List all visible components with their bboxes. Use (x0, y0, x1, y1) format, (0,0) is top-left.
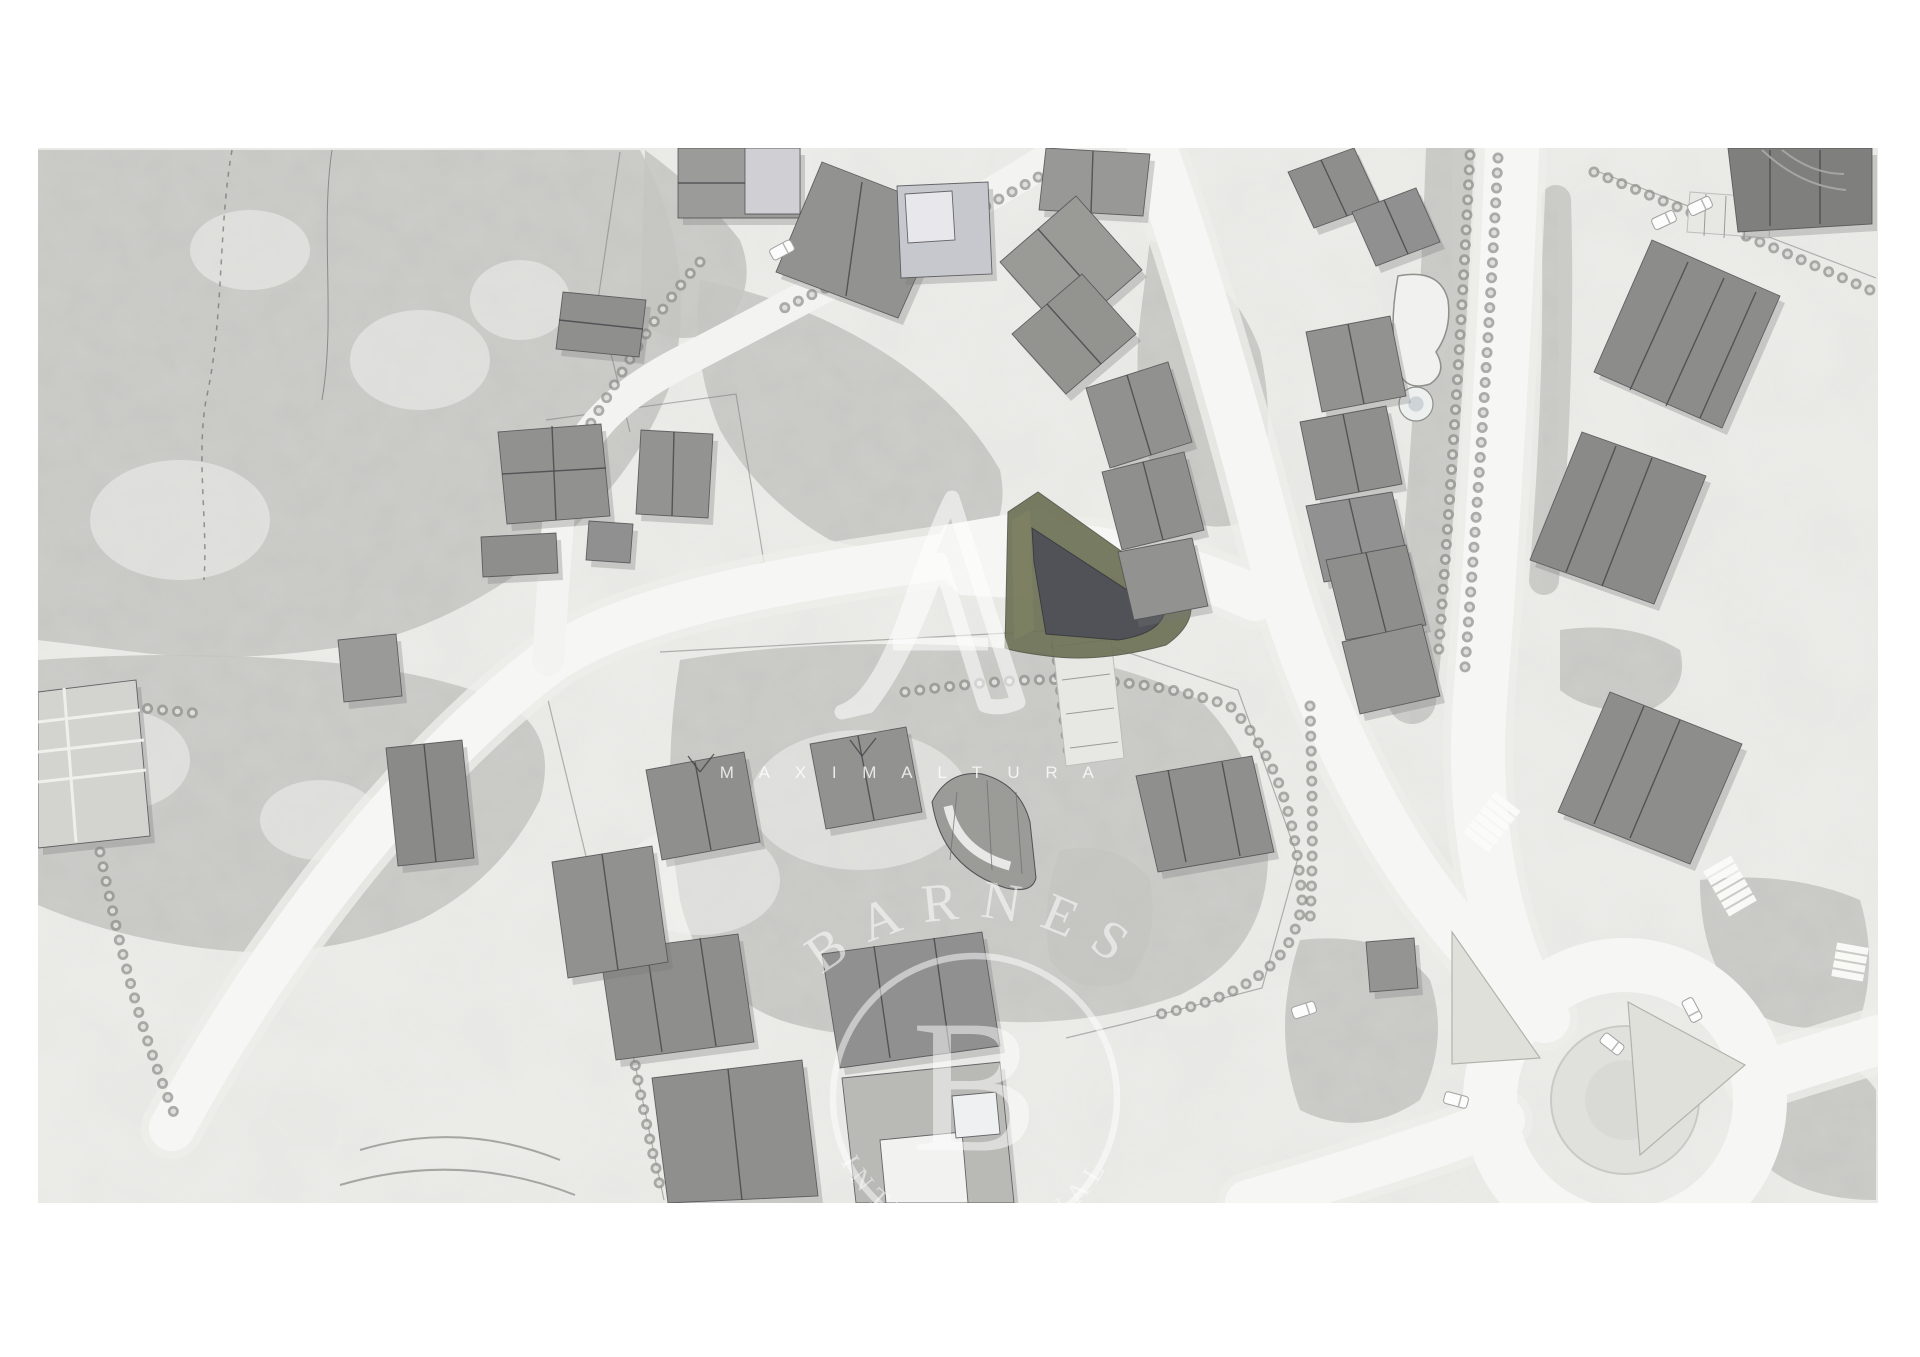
building (1039, 148, 1155, 223)
building-roof (1728, 148, 1872, 232)
building (338, 634, 407, 709)
map-content: M A X I M A L T U R ABBARNESINTERNATIONA… (38, 148, 1878, 1251)
building-roof (481, 533, 558, 577)
small-pond-water (1408, 396, 1423, 411)
building-roof (38, 680, 150, 848)
barnes-monogram-b: B (912, 982, 1039, 1192)
building (481, 533, 563, 584)
building (552, 846, 673, 985)
building (1136, 756, 1279, 879)
building (38, 680, 155, 855)
building (1306, 316, 1411, 419)
site-plan-svg: M A X I M A L T U R ABBARNESINTERNATIONA… (0, 0, 1920, 1357)
forest-clearing (350, 310, 490, 410)
building-roof (636, 430, 713, 518)
building (1366, 938, 1423, 999)
building (498, 424, 615, 531)
building (1728, 148, 1877, 239)
building-roof (745, 148, 800, 214)
forest-clearing (190, 210, 310, 290)
building-roof (1136, 756, 1274, 872)
building (386, 740, 479, 873)
maximaltura-wordmark: M A X I M A L T U R A (720, 763, 1105, 782)
building (652, 1060, 823, 1210)
building-roof (586, 521, 633, 563)
building (636, 430, 718, 525)
building-roof (1039, 148, 1150, 216)
site-plan-map: M A X I M A L T U R ABBARNESINTERNATIONA… (0, 0, 1920, 1357)
forest-clearing (90, 460, 270, 580)
building (556, 292, 651, 364)
building-roof (1366, 938, 1418, 992)
building (905, 191, 955, 243)
building (586, 521, 638, 570)
page: M A X I M A L T U R ABBARNESINTERNATIONA… (0, 0, 1920, 1357)
forest-clearing (470, 260, 570, 340)
building-roof (905, 191, 955, 243)
building-roof (338, 634, 402, 702)
tree-row-fill (1310, 706, 1312, 920)
building-roof (1118, 538, 1208, 620)
building (745, 148, 800, 214)
